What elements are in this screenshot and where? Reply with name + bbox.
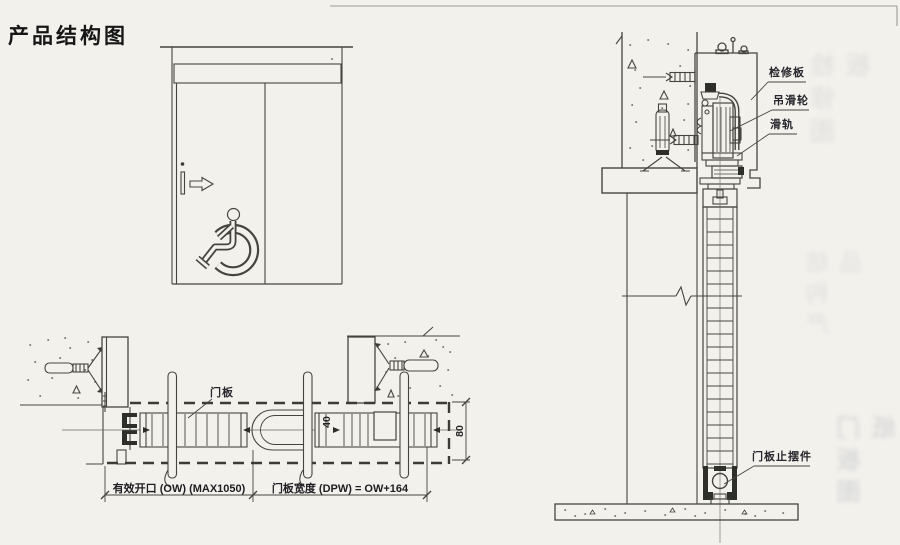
door-handle bbox=[181, 162, 185, 194]
anchor-bolts-section bbox=[643, 69, 698, 145]
hanger-mechanism bbox=[697, 83, 744, 207]
plan-left-wall bbox=[20, 338, 102, 405]
page-title: 产品结构图 bbox=[8, 20, 128, 50]
drawing-canvas: 产品结构图 门板 检修板 吊滑轮 滑轨 门板止摆件 有效开口 (OW) (MAX… bbox=[0, 0, 900, 545]
opening-lines bbox=[627, 193, 697, 504]
dim-panel-thickness: 40 bbox=[316, 412, 338, 432]
dim-track-depth: 80 bbox=[450, 421, 470, 441]
hanging-roller-label: 吊滑轮 bbox=[773, 92, 809, 108]
lintel-box bbox=[602, 168, 697, 193]
dim-effective-opening: 有效开口 (OW) (MAX1050) bbox=[105, 480, 253, 496]
vertical-anchor-icon bbox=[640, 104, 690, 171]
door-stop-label: 门板止摆件 bbox=[752, 448, 812, 464]
break-line bbox=[622, 287, 742, 305]
door-panel-label: 门板 bbox=[210, 384, 234, 400]
elevation-view bbox=[160, 47, 353, 284]
dim-door-panel-width: 门板宽度 (DPW) = OW+164 bbox=[253, 480, 427, 496]
plan-view bbox=[20, 327, 470, 502]
plan-left-jamb bbox=[86, 337, 137, 464]
direction-arrow-icon bbox=[190, 178, 213, 191]
section-view bbox=[555, 32, 810, 543]
slide-rail-label: 滑轨 bbox=[770, 116, 794, 132]
wheelchair-icon bbox=[198, 209, 255, 272]
floor-slab bbox=[555, 504, 798, 520]
inspection-panel-label: 检修板 bbox=[769, 64, 805, 80]
scan-edge bbox=[330, 6, 897, 26]
anchor-bolt-left-icon bbox=[45, 347, 103, 393]
